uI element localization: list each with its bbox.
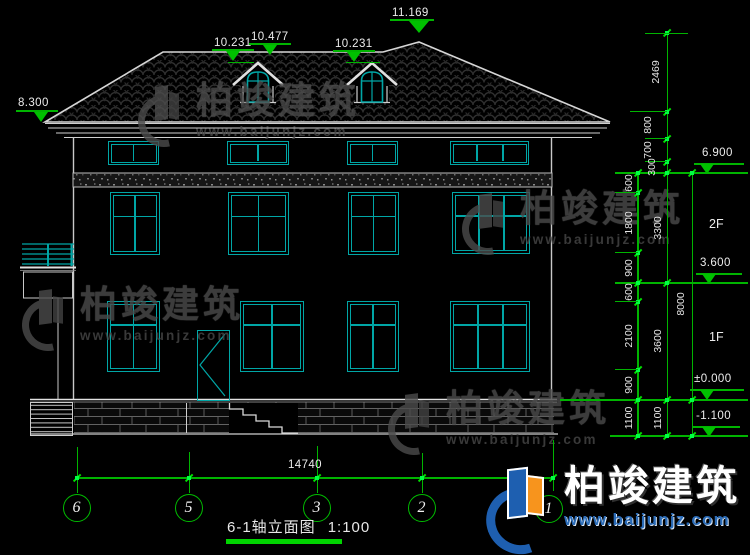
dim-total-height: 8000 — [675, 292, 687, 315]
level-right-0000: ±0.000 — [694, 373, 732, 385]
brand-logo: 柏竣建筑 www.baijunjz.com — [486, 466, 740, 542]
grid-bubble-2: 2 — [408, 494, 436, 522]
dim-detail-1100: 1100 — [623, 407, 635, 430]
brand-url: www.baijunjz.com — [564, 510, 740, 530]
dim-detail-900a: 900 — [623, 259, 635, 277]
title-text: 6-1轴立面图 — [227, 519, 316, 536]
dim-detail-900b: 900 — [623, 376, 635, 394]
dim-roof-300: 300 — [646, 158, 658, 176]
level-right-6900: 6.900 — [702, 147, 733, 159]
brand-name: 柏竣建筑 — [564, 466, 740, 507]
dim-roof-2469: 2469 — [650, 60, 662, 83]
dim-detail-600b: 600 — [623, 283, 635, 301]
grid-bubble-6: 6 — [63, 494, 91, 522]
title-scale: 1:100 — [328, 519, 371, 536]
level-dormer-left-peak: 10.477 — [251, 31, 289, 43]
level-ridge: 11.169 — [392, 7, 429, 19]
dim-floor-3300: 3300 — [652, 216, 664, 239]
dim-floor-1100: 1100 — [652, 407, 664, 430]
floor-label-1f: 1F — [709, 330, 724, 344]
dim-roof-700: 700 — [642, 141, 654, 159]
floor-label-2f: 2F — [709, 217, 724, 231]
title-underline — [226, 539, 342, 544]
cad-elevation-canvas: 柏竣建筑 www.baijunjz.com 柏竣建筑 www.baijunjz.… — [0, 0, 750, 555]
level-right-3600: 3.600 — [700, 257, 731, 269]
level-dormer-right-sill: 10.231 — [335, 38, 373, 50]
dim-total-width: 14740 — [288, 459, 322, 471]
drawing-title: 6-1轴立面图1:100 — [227, 516, 370, 537]
dim-roof-800: 800 — [642, 116, 654, 134]
dim-floor-3600: 3600 — [652, 329, 664, 352]
dim-detail-600a: 600 — [623, 174, 635, 192]
level-right-m1100: -1.100 — [696, 410, 731, 422]
dim-chain-main — [667, 33, 669, 436]
level-dormer-left-sill: 10.231 — [214, 37, 252, 49]
dim-detail-1800: 1800 — [623, 211, 635, 234]
grid-bubble-5: 5 — [175, 494, 203, 522]
dim-detail-2100: 2100 — [623, 324, 635, 347]
brand-logo-icon — [486, 466, 554, 542]
level-eave-left: 8.300 — [18, 97, 49, 109]
